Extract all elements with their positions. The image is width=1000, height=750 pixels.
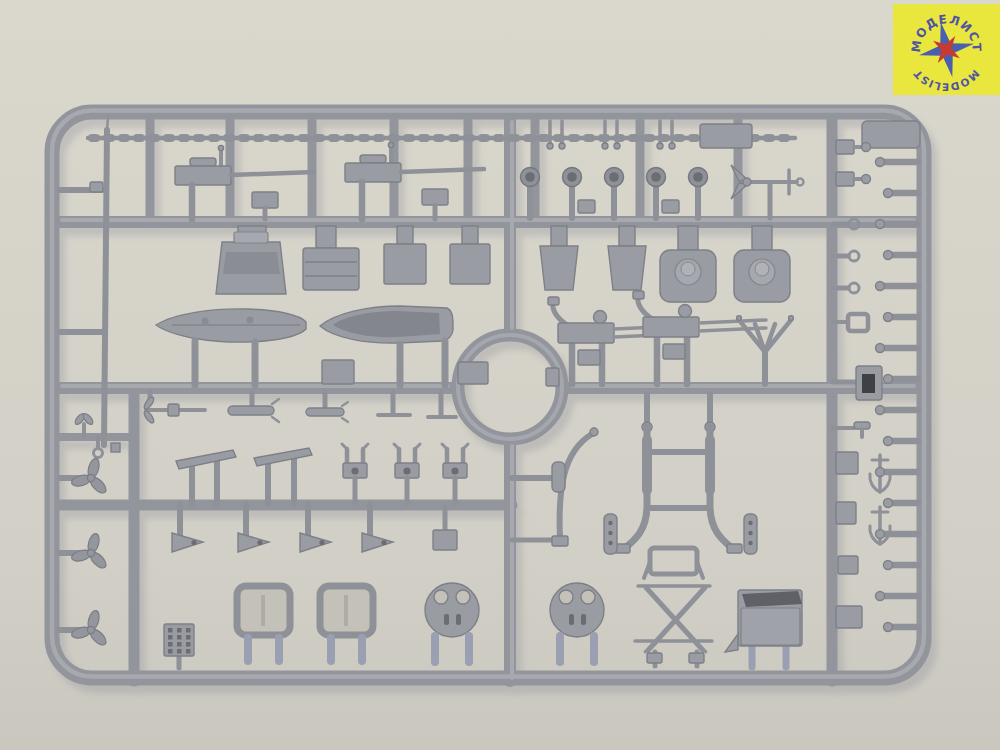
sprue-photograph: МОДЕЛИСТ MODELIST bbox=[0, 0, 1000, 750]
equipment-block bbox=[700, 124, 752, 148]
flat-plate bbox=[862, 121, 920, 148]
photo-canvas: МОДЕЛИСТ MODELIST bbox=[0, 0, 1000, 750]
brand-logo: МОДЕЛИСТ MODELIST bbox=[893, 4, 1000, 95]
